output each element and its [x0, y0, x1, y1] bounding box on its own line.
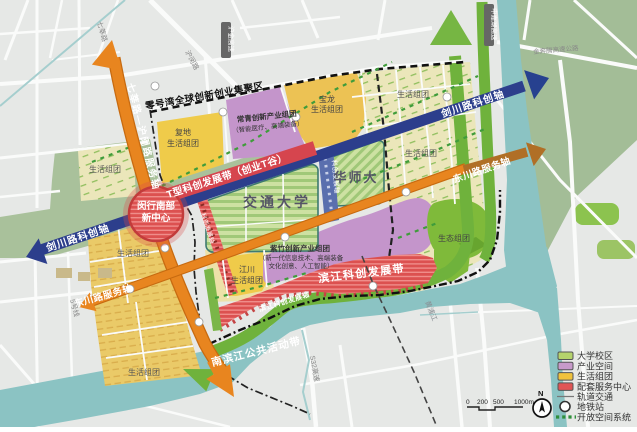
svg-text:生活组团: 生活组团: [577, 371, 613, 382]
svg-text:紫竹创新产业组团: 紫竹创新产业组团: [270, 243, 330, 253]
svg-text:200: 200: [477, 399, 488, 406]
svg-text:生活组团: 生活组团: [89, 164, 121, 174]
svg-text:轨道交通: 轨道交通: [577, 391, 613, 402]
svg-text:N: N: [538, 389, 543, 398]
svg-text:0: 0: [466, 399, 470, 406]
svg-text:新中心: 新中心: [142, 212, 171, 224]
svg-text:生活组团: 生活组团: [397, 89, 429, 99]
svg-text:复地: 复地: [175, 127, 191, 137]
svg-text:华师大: 华师大: [333, 170, 378, 185]
svg-text:文化创意、人工智能）: 文化创意、人工智能）: [269, 261, 334, 270]
svg-text:沪金高速: 沪金高速: [227, 26, 236, 53]
svg-text:生活组团: 生活组团: [405, 148, 437, 158]
svg-text:开放空间系统: 开放空间系统: [577, 412, 631, 423]
svg-text:（新一代信息技术、高端装备: （新一代信息技术、高端装备: [259, 253, 344, 262]
svg-text:配套服务中心: 配套服务中心: [577, 381, 631, 392]
svg-text:产业空间: 产业空间: [577, 360, 613, 371]
svg-text:闵行南部: 闵行南部: [137, 200, 176, 212]
svg-text:大学校区: 大学校区: [577, 350, 613, 361]
svg-text:地铁站: 地铁站: [577, 401, 604, 412]
svg-text:500: 500: [493, 399, 504, 406]
svg-text:宝龙: 宝龙: [319, 94, 335, 104]
svg-text:生活组团: 生活组团: [167, 138, 199, 148]
svg-text:生态组团: 生态组团: [438, 233, 470, 243]
svg-text:生活组团: 生活组团: [128, 367, 160, 377]
svg-text:1000m: 1000m: [514, 399, 534, 406]
svg-text:江川: 江川: [239, 265, 255, 274]
svg-text:交通大学: 交通大学: [243, 194, 311, 210]
svg-text:生活组团: 生活组团: [311, 104, 343, 114]
svg-text:生活组团: 生活组团: [117, 248, 149, 258]
svg-text:生活组团: 生活组团: [231, 275, 263, 285]
svg-text:申嘉湖高速: 申嘉湖高速: [490, 8, 499, 41]
